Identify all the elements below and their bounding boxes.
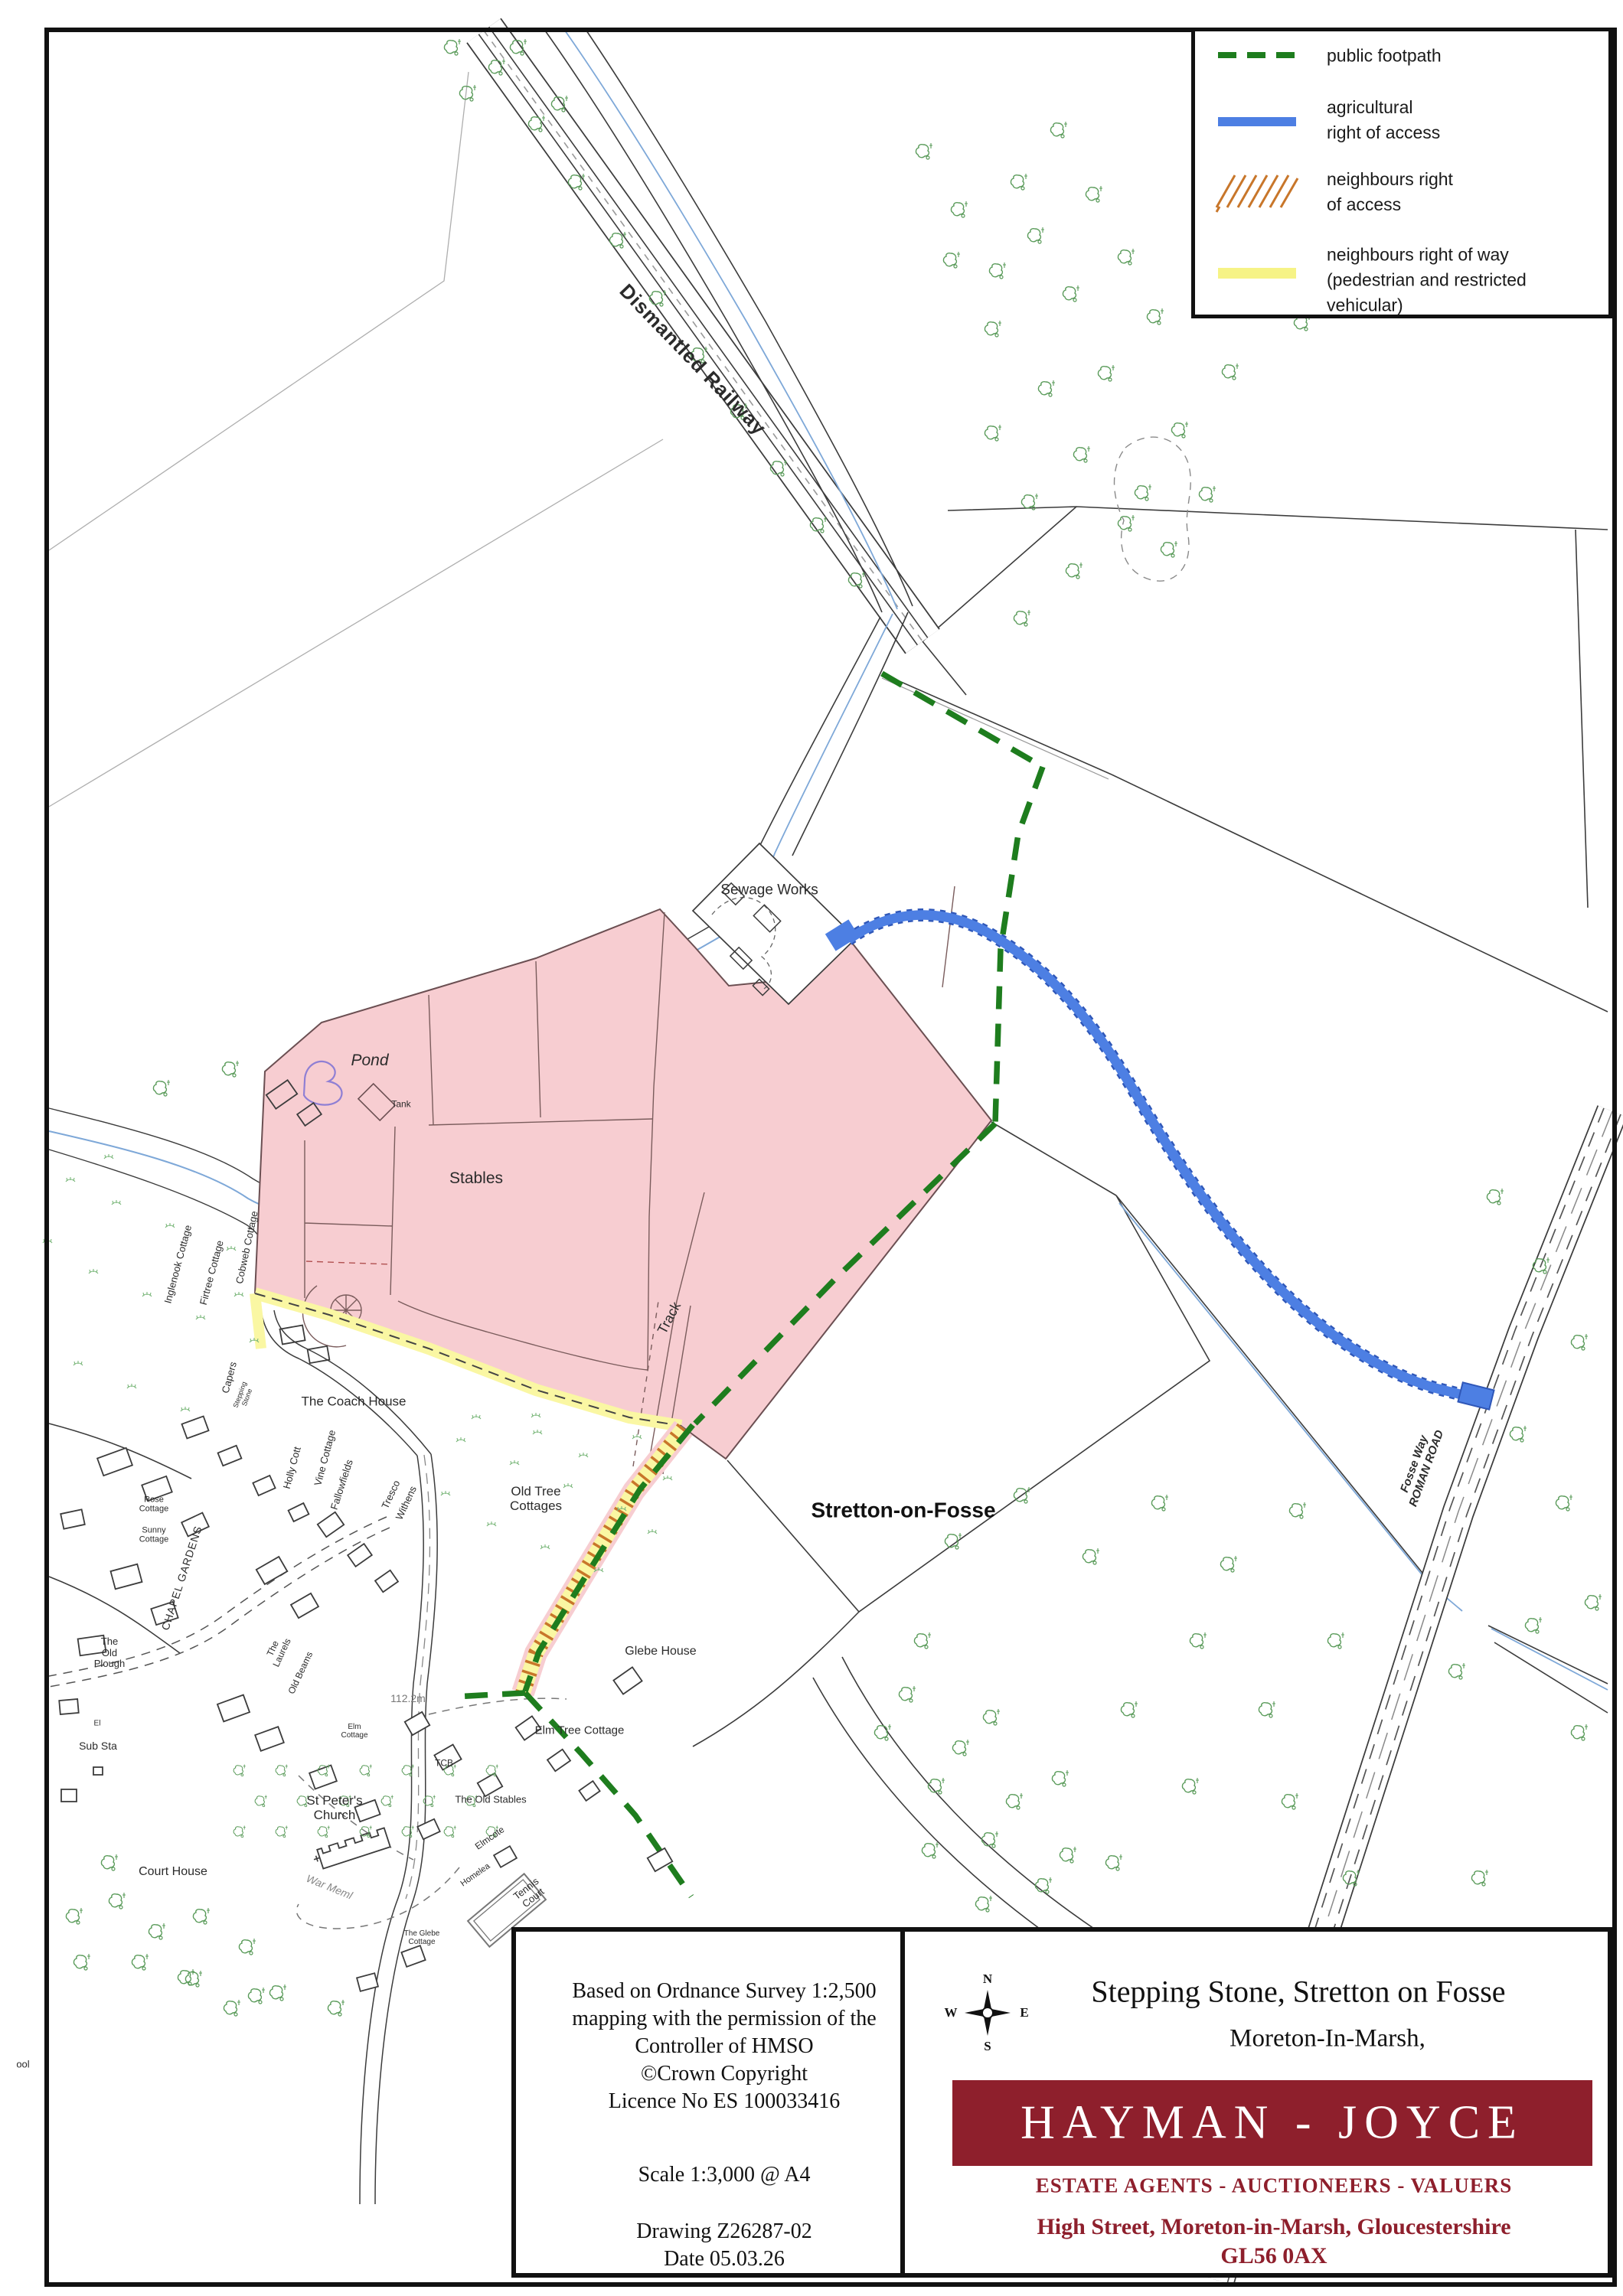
property-title: Stepping Stone, Stretton on Fosse [1091, 1974, 1505, 2010]
legend-label-footpath: public footpath [1327, 44, 1442, 69]
compass-north-label: N [983, 1971, 992, 1987]
site-plan-page: Dismantled RailwaySewage WorksPondTankSt… [0, 0, 1623, 2296]
compass-west-label: W [945, 2005, 958, 2020]
compass-south-label: S [984, 2039, 991, 2054]
footpath-legend-icon [1215, 44, 1299, 67]
legend-label-right-of-way: neighbours right of way (pedestrian and … [1327, 243, 1527, 318]
brand-banner: HAYMAN - JOYCE [952, 2080, 1592, 2166]
compass-east-label: E [1020, 2005, 1028, 2020]
property-subtitle: Moreton-In-Marsh, [1229, 2025, 1425, 2053]
brand-address-line2: GL56 0AX [1220, 2243, 1327, 2269]
neighbours-right-of-way-legend-icon [1215, 262, 1299, 285]
brand-address-line1: High Street, Moreton-in-Marsh, Glouceste… [1037, 2214, 1510, 2240]
drawing-date: Date 05.03.26 [664, 2247, 785, 2272]
brand-name: HAYMAN - JOYCE [1020, 2096, 1524, 2151]
legend-label-agricultural: agricultural right of access [1327, 95, 1440, 145]
brand-tagline: ESTATE AGENTS - AUCTIONEERS - VALUERS [1036, 2174, 1512, 2198]
title-block: Based on Ordnance Survey 1:2,500 mapping… [511, 1927, 1612, 2278]
legend: public footpath agricultural right of ac… [1191, 28, 1612, 318]
legend-label-neighbours-access: neighbours right of access [1327, 167, 1453, 217]
drawing-number: Drawing Z26287-02 [636, 2219, 811, 2244]
neighbours-access-legend-icon [1215, 169, 1299, 214]
os-copyright-note: Based on Ordnance Survey 1:2,500 mapping… [510, 1978, 939, 2115]
agricultural-access-legend-icon [1215, 110, 1299, 133]
scale-note: Scale 1:3,000 @ A4 [638, 2163, 811, 2187]
